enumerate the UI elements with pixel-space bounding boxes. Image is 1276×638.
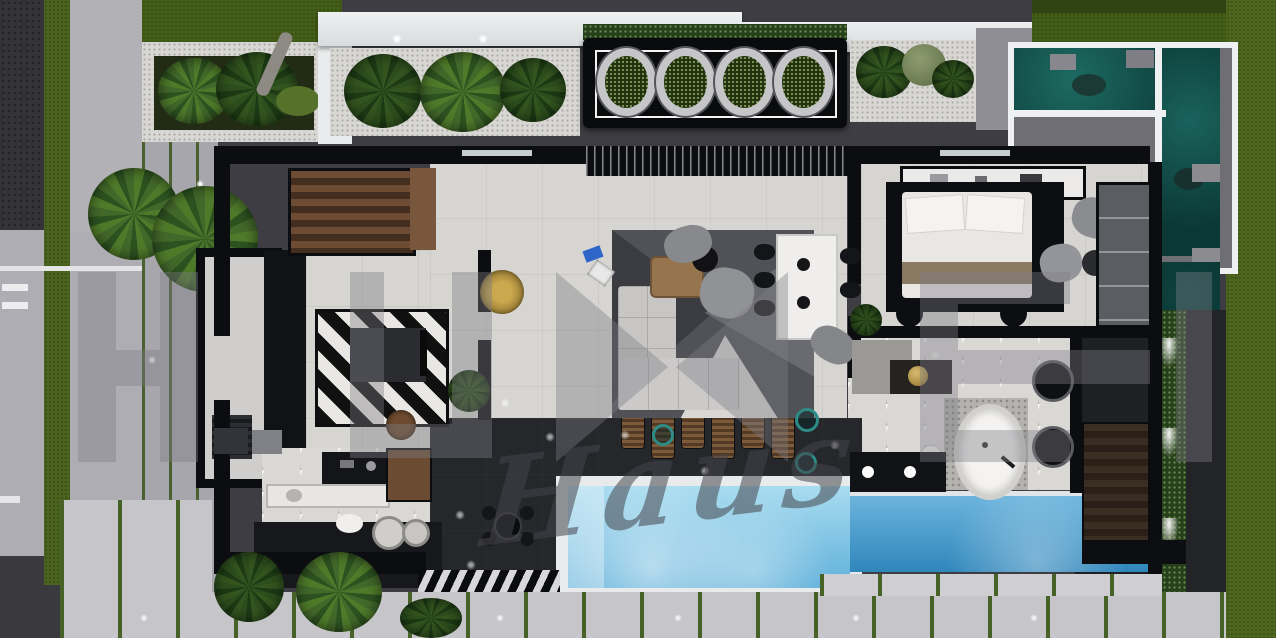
planter-pot [774,48,833,116]
dryer-unit [252,430,282,454]
wall-living-bedroom [848,162,861,284]
pond-divider [1014,110,1166,117]
bedroom-plant [850,304,882,336]
dining-chair [754,272,775,288]
walkway-step-light [674,614,682,622]
watermark-block [350,272,384,458]
watermark-block [958,272,1070,304]
floorplan-render: Haus [0,0,1276,638]
walkway-left-pad [60,500,212,592]
bed-pillow [965,194,1025,234]
credenza-item [340,460,354,468]
stair-landing [410,168,436,250]
outdoor-bench [1082,540,1186,564]
shower-head-round [402,519,430,547]
bed-pillow [905,194,965,234]
planter-pots [597,54,833,110]
window-sill [462,150,532,156]
tree-base-lawn [276,86,320,116]
powder-toilet [336,514,363,533]
vanity-sink [904,466,916,478]
pond-water-right [1162,48,1220,256]
staircase [288,168,416,256]
fountain-spout [1192,164,1220,182]
road-marking [2,284,28,291]
recessed-light [455,510,465,520]
walkway-step-light [852,614,860,622]
watermark-block [116,350,160,386]
walkway-step-light [1030,614,1038,622]
watermark-block [452,272,492,458]
planter-pot [656,48,715,116]
watermark-block [958,430,1070,462]
canopy-downlight [392,34,402,44]
dining-chair [840,282,861,298]
watermark-block [1176,272,1212,462]
dining-chair [840,248,861,264]
place-setting [797,296,810,309]
wardrobe [1096,182,1152,328]
road-marking [2,302,28,309]
lawn-top-left [142,0,342,42]
canopy-downlight [478,34,488,44]
road-marking [0,496,20,503]
watermark-block [160,272,198,462]
washer-unit [214,428,248,454]
fountain-spout [1050,54,1076,70]
watermark-block [920,272,958,462]
bottom-palm [296,552,382,632]
walkway-step-light [496,614,504,622]
plant [932,60,974,98]
place-setting [797,258,810,271]
wood-deck-panel [1082,422,1150,550]
street-asphalt [0,0,46,240]
credenza-item [366,461,376,471]
entry-plants [500,58,566,122]
bottom-plant [214,552,284,622]
shower-head-round [372,516,406,550]
bed-stool [1000,300,1027,327]
wall-left-lower [214,400,230,572]
planter-pot [715,48,774,116]
bed-stool [896,300,923,327]
fountain-spout [1126,50,1154,68]
watermark-block [958,350,1150,384]
powder-sink [286,489,302,502]
entry-plants [420,52,506,132]
window-sill [940,150,1010,156]
pond-rock [1072,74,1106,96]
watermark-block [78,272,116,462]
bottom-palm [400,598,462,638]
pool-walkway [820,574,1162,596]
recessed-light [466,560,476,570]
walkway-step-light [140,614,148,622]
desk-monitor [420,330,427,376]
lawn-strip-left [44,0,70,585]
curb-line [0,266,142,271]
entry-plants [344,54,422,128]
wall-left-upper [214,146,230,336]
planter-pot [597,48,656,116]
pergola-slats [586,146,848,176]
watermark-block [384,424,452,458]
dining-chair [754,244,775,260]
recessed-light [500,398,510,408]
